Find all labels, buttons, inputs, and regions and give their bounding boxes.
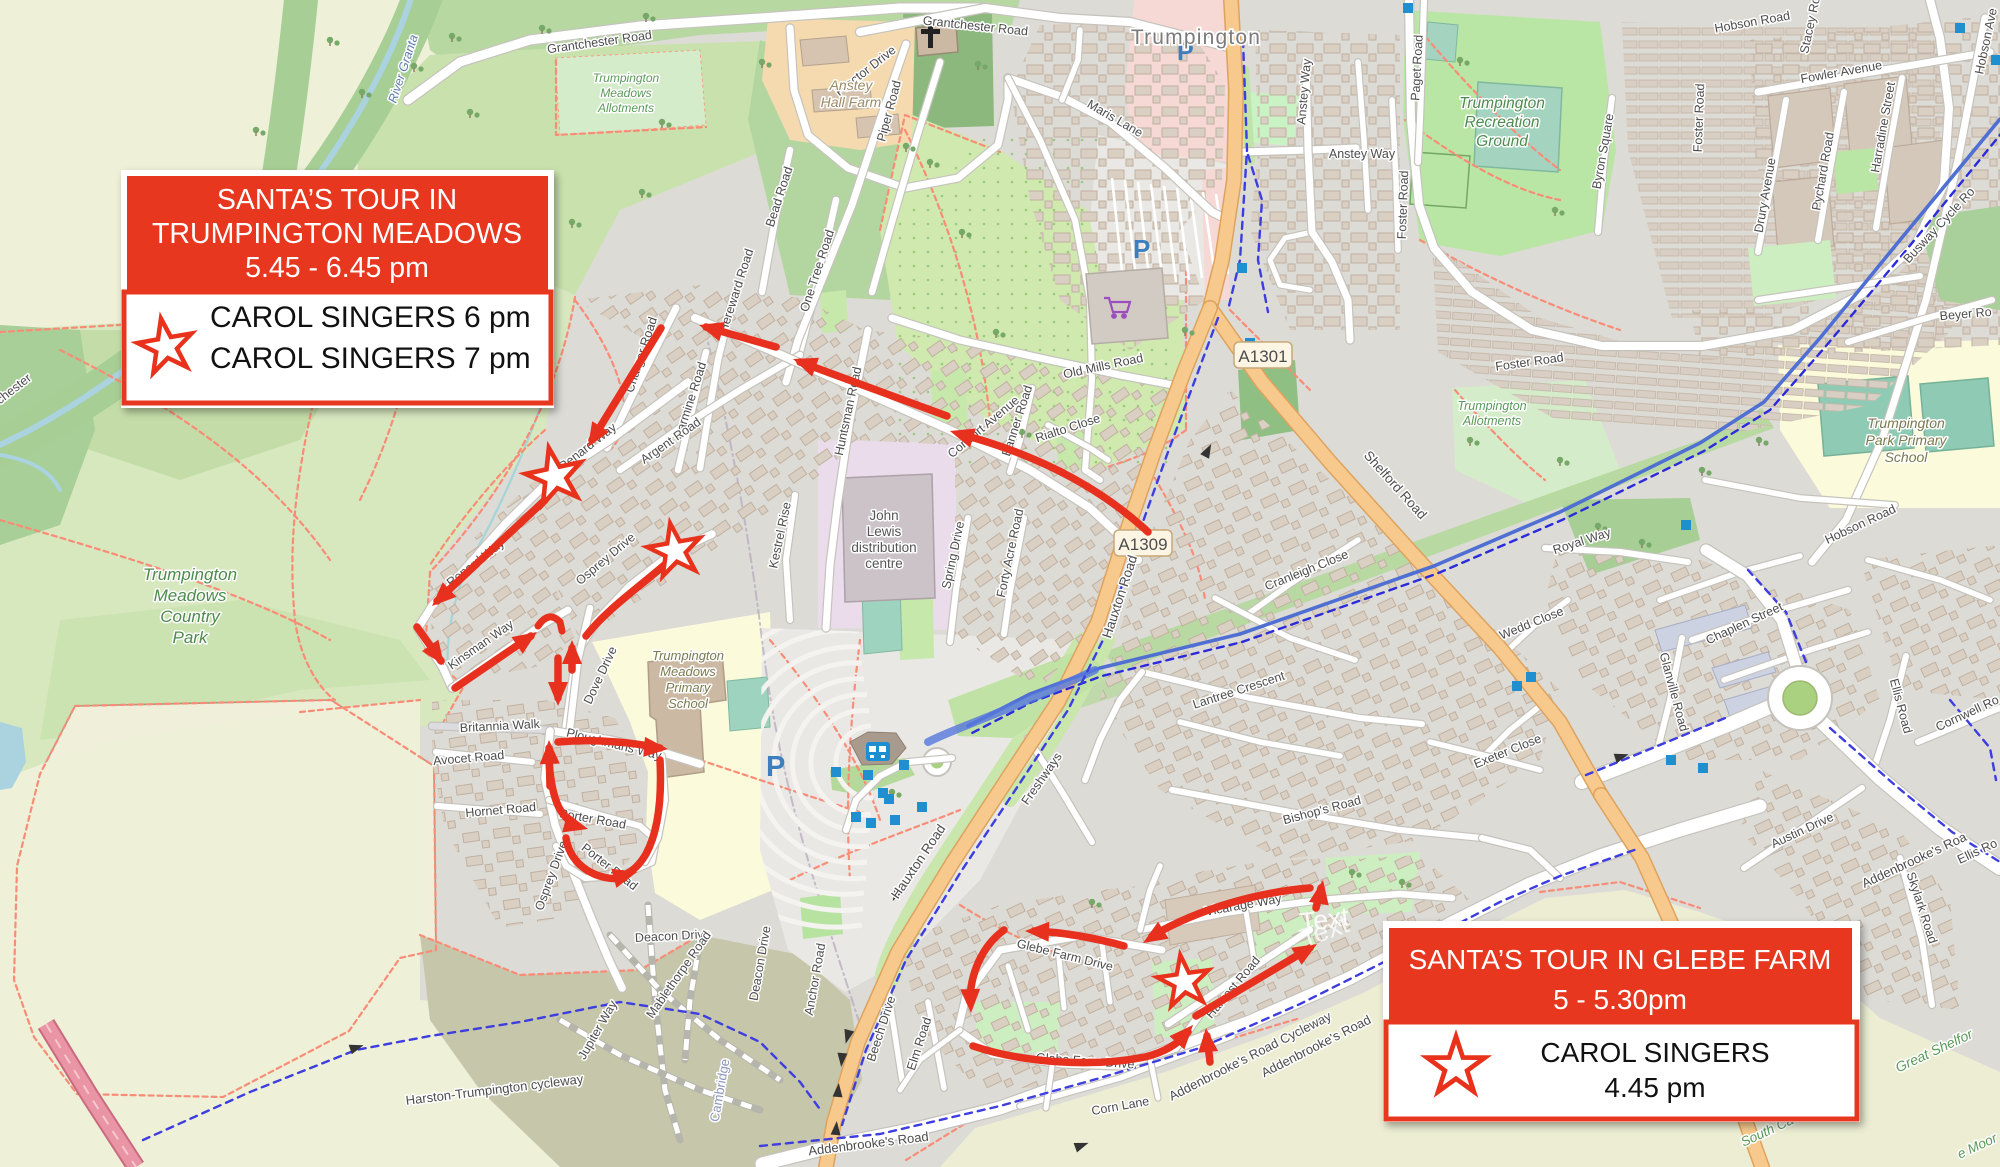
svg-text:TRUMPINGTON MEADOWS: TRUMPINGTON MEADOWS — [152, 218, 522, 250]
svg-text:P: P — [1133, 234, 1150, 264]
svg-text:5 - 5.30pm: 5 - 5.30pm — [1553, 984, 1687, 1015]
svg-text:5.45 - 6.45 pm: 5.45 - 6.45 pm — [245, 252, 429, 284]
svg-text:CAROL SINGERS 7 pm: CAROL SINGERS 7 pm — [210, 342, 531, 375]
svg-text:CAROL SINGERS: CAROL SINGERS — [1540, 1037, 1769, 1068]
svg-text:SANTA’S TOUR IN GLEBE FARM: SANTA’S TOUR IN GLEBE FARM — [1409, 944, 1832, 975]
svg-text:SANTA’S TOUR IN: SANTA’S TOUR IN — [217, 184, 457, 216]
svg-text:Trumpington: Trumpington — [1131, 26, 1261, 49]
svg-text:Foster Road: Foster Road — [1395, 170, 1411, 239]
svg-text:CAROL SINGERS 6 pm: CAROL SINGERS 6 pm — [210, 301, 531, 334]
svg-text:TrumpingtonMeadowsAllotments: TrumpingtonMeadowsAllotments — [593, 71, 660, 115]
svg-text:Foster Road: Foster Road — [1691, 83, 1707, 152]
svg-text:TrumpingtonAllotments: TrumpingtonAllotments — [1457, 399, 1526, 428]
svg-text:A1301: A1301 — [1238, 347, 1287, 366]
svg-text:P: P — [766, 751, 785, 783]
svg-text:Anstey Way: Anstey Way — [1329, 147, 1396, 161]
svg-text:A1309: A1309 — [1118, 535, 1167, 554]
svg-text:4.45 pm: 4.45 pm — [1604, 1072, 1705, 1103]
